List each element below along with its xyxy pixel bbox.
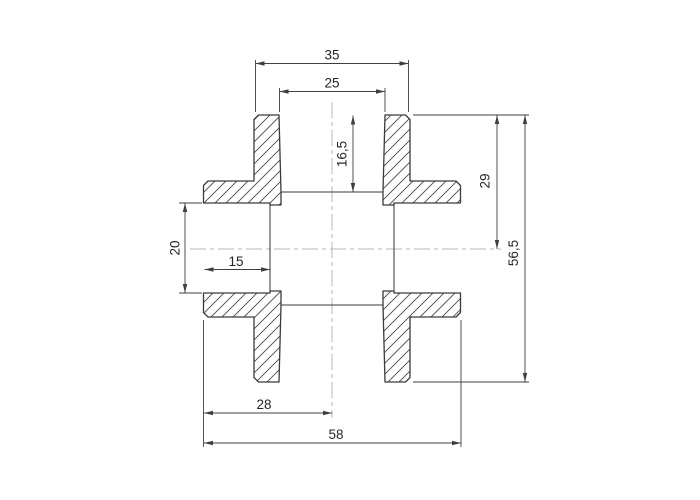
dim-label-overall-height: 56,5 xyxy=(506,240,521,266)
dim-label-top-socket-depth: 16,5 xyxy=(335,141,350,167)
technical-drawing: 35 25 16,5 29 56,5 20 15 28 58 xyxy=(0,0,700,500)
dim-label-top-outer-width: 35 xyxy=(324,48,339,63)
drawing-background xyxy=(0,0,700,500)
dim-label-left-face-to-center: 28 xyxy=(256,397,271,412)
dim-label-overall-width: 58 xyxy=(328,427,343,442)
drawing-page: 35 25 16,5 29 56,5 20 15 28 58 xyxy=(0,0,700,500)
dim-label-side-socket-depth: 15 xyxy=(228,254,243,269)
dim-label-top-bore-width: 25 xyxy=(324,76,339,91)
dim-label-side-bore-height: 20 xyxy=(168,240,183,255)
dim-label-top-face-to-center: 29 xyxy=(478,173,493,188)
